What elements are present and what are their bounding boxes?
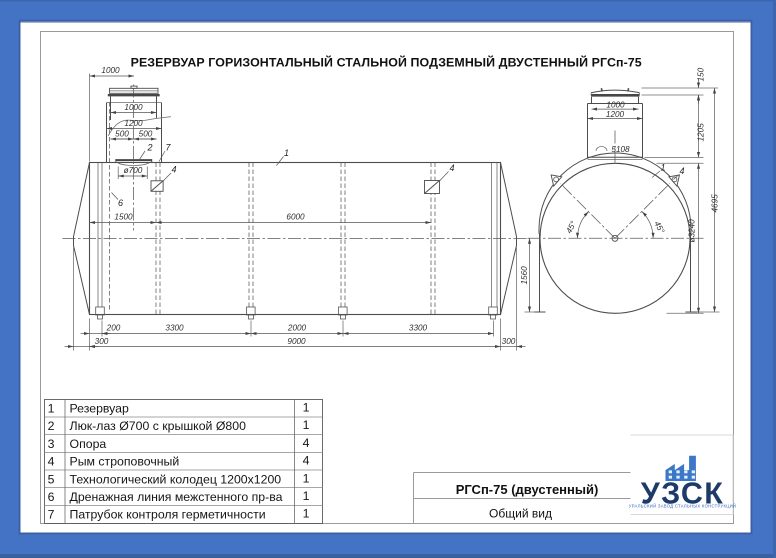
svg-text:4: 4 xyxy=(450,163,455,173)
svg-text:1200: 1200 xyxy=(606,110,625,119)
svg-text:9000: 9000 xyxy=(287,337,306,346)
svg-text:3300: 3300 xyxy=(165,324,184,333)
svg-text:1: 1 xyxy=(661,163,666,173)
svg-text:1500: 1500 xyxy=(114,213,133,222)
svg-text:Рым строповочный: Рым строповочный xyxy=(70,455,180,469)
svg-text:4: 4 xyxy=(48,455,55,469)
svg-text:2: 2 xyxy=(147,143,153,153)
svg-text:1: 1 xyxy=(284,148,289,158)
svg-text:1000: 1000 xyxy=(124,103,143,112)
svg-text:2: 2 xyxy=(48,419,55,433)
svg-text:2000: 2000 xyxy=(287,324,307,333)
svg-text:6000: 6000 xyxy=(286,213,305,222)
svg-text:1000: 1000 xyxy=(606,101,625,110)
svg-text:ø700: ø700 xyxy=(124,166,143,175)
svg-text:4: 4 xyxy=(303,454,310,468)
svg-text:4: 4 xyxy=(680,166,685,176)
svg-text:500: 500 xyxy=(139,129,153,138)
svg-text:1: 1 xyxy=(303,507,310,521)
svg-text:1: 1 xyxy=(303,489,310,503)
svg-text:1: 1 xyxy=(303,471,310,485)
svg-text:Люк-лаз Ø700 с крышкой Ø800: Люк-лаз Ø700 с крышкой Ø800 xyxy=(70,419,247,433)
svg-text:500: 500 xyxy=(115,129,129,138)
svg-text:Дренажная линия межстенного пр: Дренажная линия межстенного пр-ва xyxy=(70,490,283,504)
svg-text:1560: 1560 xyxy=(520,266,529,285)
svg-text:1000: 1000 xyxy=(101,66,120,75)
svg-text:Общий вид: Общий вид xyxy=(489,507,552,521)
svg-text:РГСп-75 (двустенный): РГСп-75 (двустенный) xyxy=(456,482,599,497)
svg-text:1200: 1200 xyxy=(124,119,143,128)
svg-text:4: 4 xyxy=(303,436,310,450)
svg-text:Технологический колодец 1200х1: Технологический колодец 1200х1200 xyxy=(70,472,282,486)
svg-text:Резервуар: Резервуар xyxy=(70,402,130,416)
svg-text:1: 1 xyxy=(303,418,310,432)
svg-text:4695: 4695 xyxy=(710,194,719,213)
svg-text:150: 150 xyxy=(696,67,705,81)
svg-text:3300: 3300 xyxy=(409,324,428,333)
svg-text:1: 1 xyxy=(303,401,310,415)
svg-text:3: 3 xyxy=(48,437,55,451)
svg-text:6: 6 xyxy=(118,198,123,208)
svg-text:6: 6 xyxy=(48,490,55,504)
svg-text:5108: 5108 xyxy=(611,145,630,154)
svg-text:200: 200 xyxy=(106,324,121,333)
svg-text:ø3240: ø3240 xyxy=(688,219,697,243)
svg-text:УРАЛЬСКИЙ ЗАВОД СТАЛЬНЫХ КОНСТ: УРАЛЬСКИЙ ЗАВОД СТАЛЬНЫХ КОНСТРУКЦИЙ xyxy=(629,504,736,509)
svg-text:Опора: Опора xyxy=(70,437,107,451)
svg-text:5: 5 xyxy=(48,472,55,486)
svg-text:Патрубок контроля герметичност: Патрубок контроля герметичности xyxy=(70,508,266,522)
svg-text:7: 7 xyxy=(48,508,55,522)
svg-text:4: 4 xyxy=(172,165,177,175)
svg-text:1: 1 xyxy=(48,402,55,416)
svg-text:РЕЗЕРВУАР ГОРИЗОНТАЛЬНЫЙ СТАЛЬ: РЕЗЕРВУАР ГОРИЗОНТАЛЬНЫЙ СТАЛЬНОЙ ПОДЗЕМ… xyxy=(131,55,642,70)
svg-text:1205: 1205 xyxy=(697,123,706,142)
svg-text:300: 300 xyxy=(95,337,109,346)
svg-text:300: 300 xyxy=(502,337,516,346)
